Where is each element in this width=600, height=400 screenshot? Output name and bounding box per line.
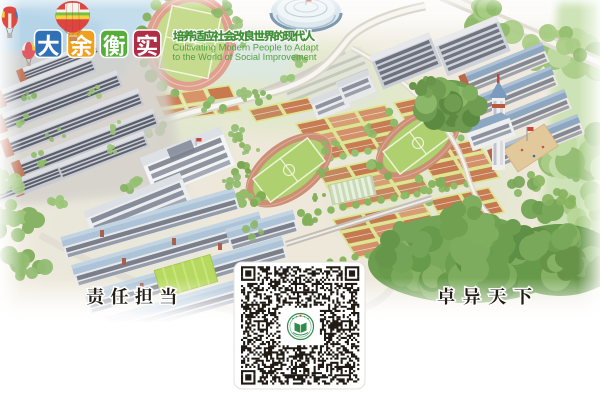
svg-text:to the World of Social Improve: to the World of Social Improvement [173, 51, 317, 62]
